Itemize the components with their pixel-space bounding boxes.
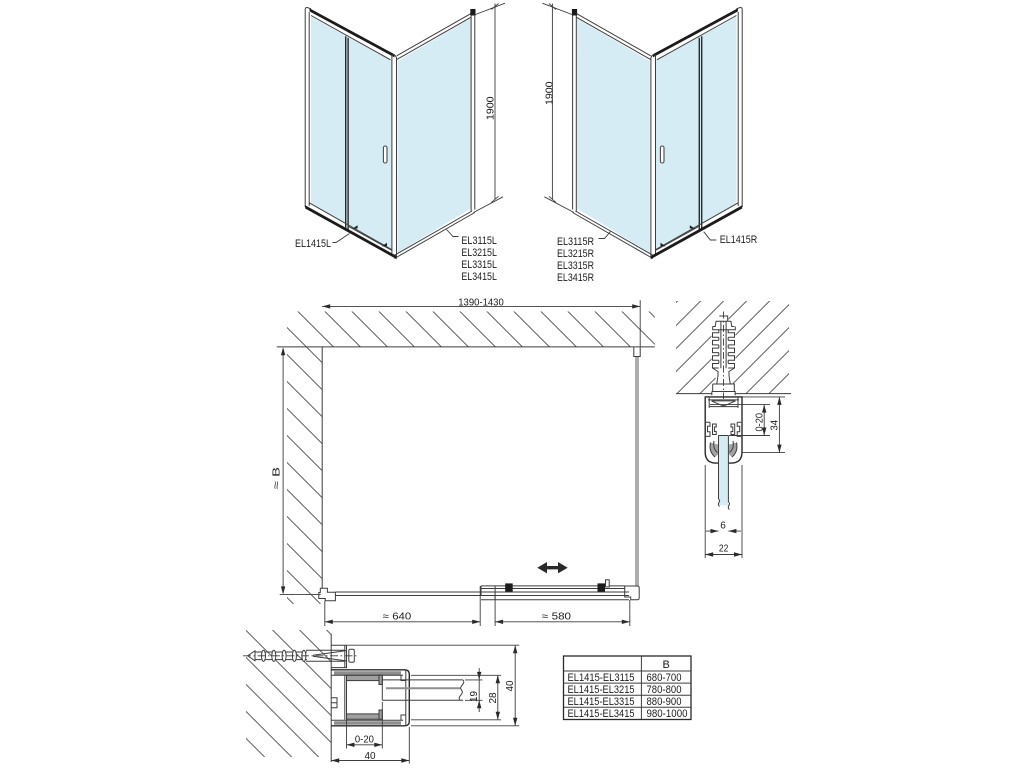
- svg-text:EL3115R: EL3115R: [557, 236, 594, 248]
- svg-text:EL1415R: EL1415R: [720, 234, 758, 246]
- svg-text:28: 28: [488, 692, 499, 703]
- svg-text:EL3415L: EL3415L: [461, 271, 497, 283]
- svg-text:19: 19: [469, 691, 480, 702]
- svg-text:EL3215L: EL3215L: [461, 247, 497, 259]
- svg-text:1900: 1900: [486, 96, 497, 120]
- svg-text:40: 40: [505, 680, 516, 691]
- svg-text:0-20: 0-20: [355, 735, 374, 746]
- svg-text:1900: 1900: [545, 81, 556, 105]
- svg-text:≈ 580: ≈ 580: [542, 612, 572, 623]
- svg-text:780-800: 780-800: [647, 684, 682, 696]
- svg-text:6: 6: [720, 521, 726, 532]
- svg-text:EL3115L: EL3115L: [461, 235, 497, 247]
- svg-text:880-900: 880-900: [647, 696, 682, 708]
- svg-text:EL3315L: EL3315L: [461, 259, 497, 271]
- svg-text:EL1415-EL3415: EL1415-EL3415: [568, 708, 635, 720]
- svg-text:EL3415R: EL3415R: [557, 272, 594, 284]
- svg-text:EL1415-EL3115: EL1415-EL3115: [568, 672, 635, 684]
- svg-text:≈ B: ≈ B: [272, 467, 283, 489]
- svg-text:EL1415L: EL1415L: [295, 238, 331, 250]
- svg-text:34: 34: [770, 420, 781, 431]
- svg-text:≈ 640: ≈ 640: [383, 612, 412, 623]
- svg-text:0-20: 0-20: [755, 413, 766, 432]
- svg-text:B: B: [663, 659, 670, 671]
- svg-text:EL1415-EL3215: EL1415-EL3215: [568, 684, 635, 696]
- svg-text:980-1000: 980-1000: [647, 708, 688, 720]
- svg-text:22: 22: [719, 544, 729, 555]
- svg-text:40: 40: [364, 751, 376, 762]
- svg-text:EL3215R: EL3215R: [557, 248, 594, 260]
- svg-text:1390-1430: 1390-1430: [458, 297, 504, 308]
- svg-text:EL3315R: EL3315R: [557, 260, 594, 272]
- svg-text:EL1415-EL3315: EL1415-EL3315: [568, 696, 635, 708]
- svg-text:680-700: 680-700: [647, 672, 682, 684]
